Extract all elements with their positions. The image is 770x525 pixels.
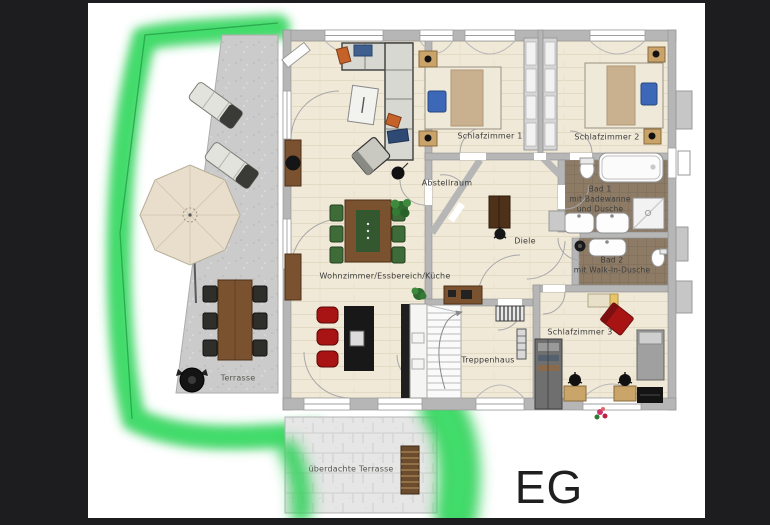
room-label-schlafzimmer2: Schlafzimmer 2 (574, 133, 639, 142)
red-lounge-chairs (317, 307, 338, 367)
room-label-schlafzimmer3: Schlafzimmer 3 (547, 328, 612, 337)
room-label-treppenhaus: Treppenhaus (461, 356, 514, 365)
letterbox-background: Terrasse überdachte Terrasse Wohnzimmer/… (0, 0, 770, 525)
fireplace-tv-unit (344, 306, 374, 371)
room-label-diele: Diele (514, 237, 535, 246)
terrace-bench (401, 446, 419, 494)
railing (517, 329, 526, 359)
room-label-bad1-line1: Bad 1 (569, 184, 630, 194)
room-label-bad1-line3: und Dusche (569, 204, 630, 214)
room-label-ueberdachte-terrasse: überdachte Terrasse (308, 465, 393, 474)
potted-plant (391, 199, 412, 218)
shoe-rack (496, 306, 524, 321)
room-label-wohnzimmer: Wohnzimmer/Essbereich/Küche (320, 272, 451, 281)
kitchen-counter (444, 286, 482, 304)
room-label-bad2-line2: mit Walk-In-Dusche (574, 265, 651, 275)
room-label-bad2-line1: Bad 2 (574, 255, 651, 265)
coffee-table (348, 85, 379, 124)
sideboard (285, 254, 301, 300)
sideboard (285, 140, 301, 186)
floor-level-label: EG (515, 460, 583, 514)
room-label-schlafzimmer1: Schlafzimmer 1 (457, 132, 522, 141)
room-label-bad1-line2: mit Badewanne (569, 194, 630, 204)
outdoor-dining-table (203, 280, 267, 360)
room-label-abstellraum: Abstellraum (422, 179, 472, 188)
room-label-terrasse: Terrasse (221, 374, 256, 383)
wardrobe (535, 339, 562, 409)
exterior-window-boxes (676, 91, 692, 313)
room-label-bad1: Bad 1 mit Badewanne und Dusche (569, 184, 630, 213)
floorplan-image: Terrasse überdachte Terrasse Wohnzimmer/… (88, 3, 705, 518)
single-bed (637, 330, 664, 380)
room-label-bad2: Bad 2 mit Walk-In-Dusche (574, 255, 651, 275)
